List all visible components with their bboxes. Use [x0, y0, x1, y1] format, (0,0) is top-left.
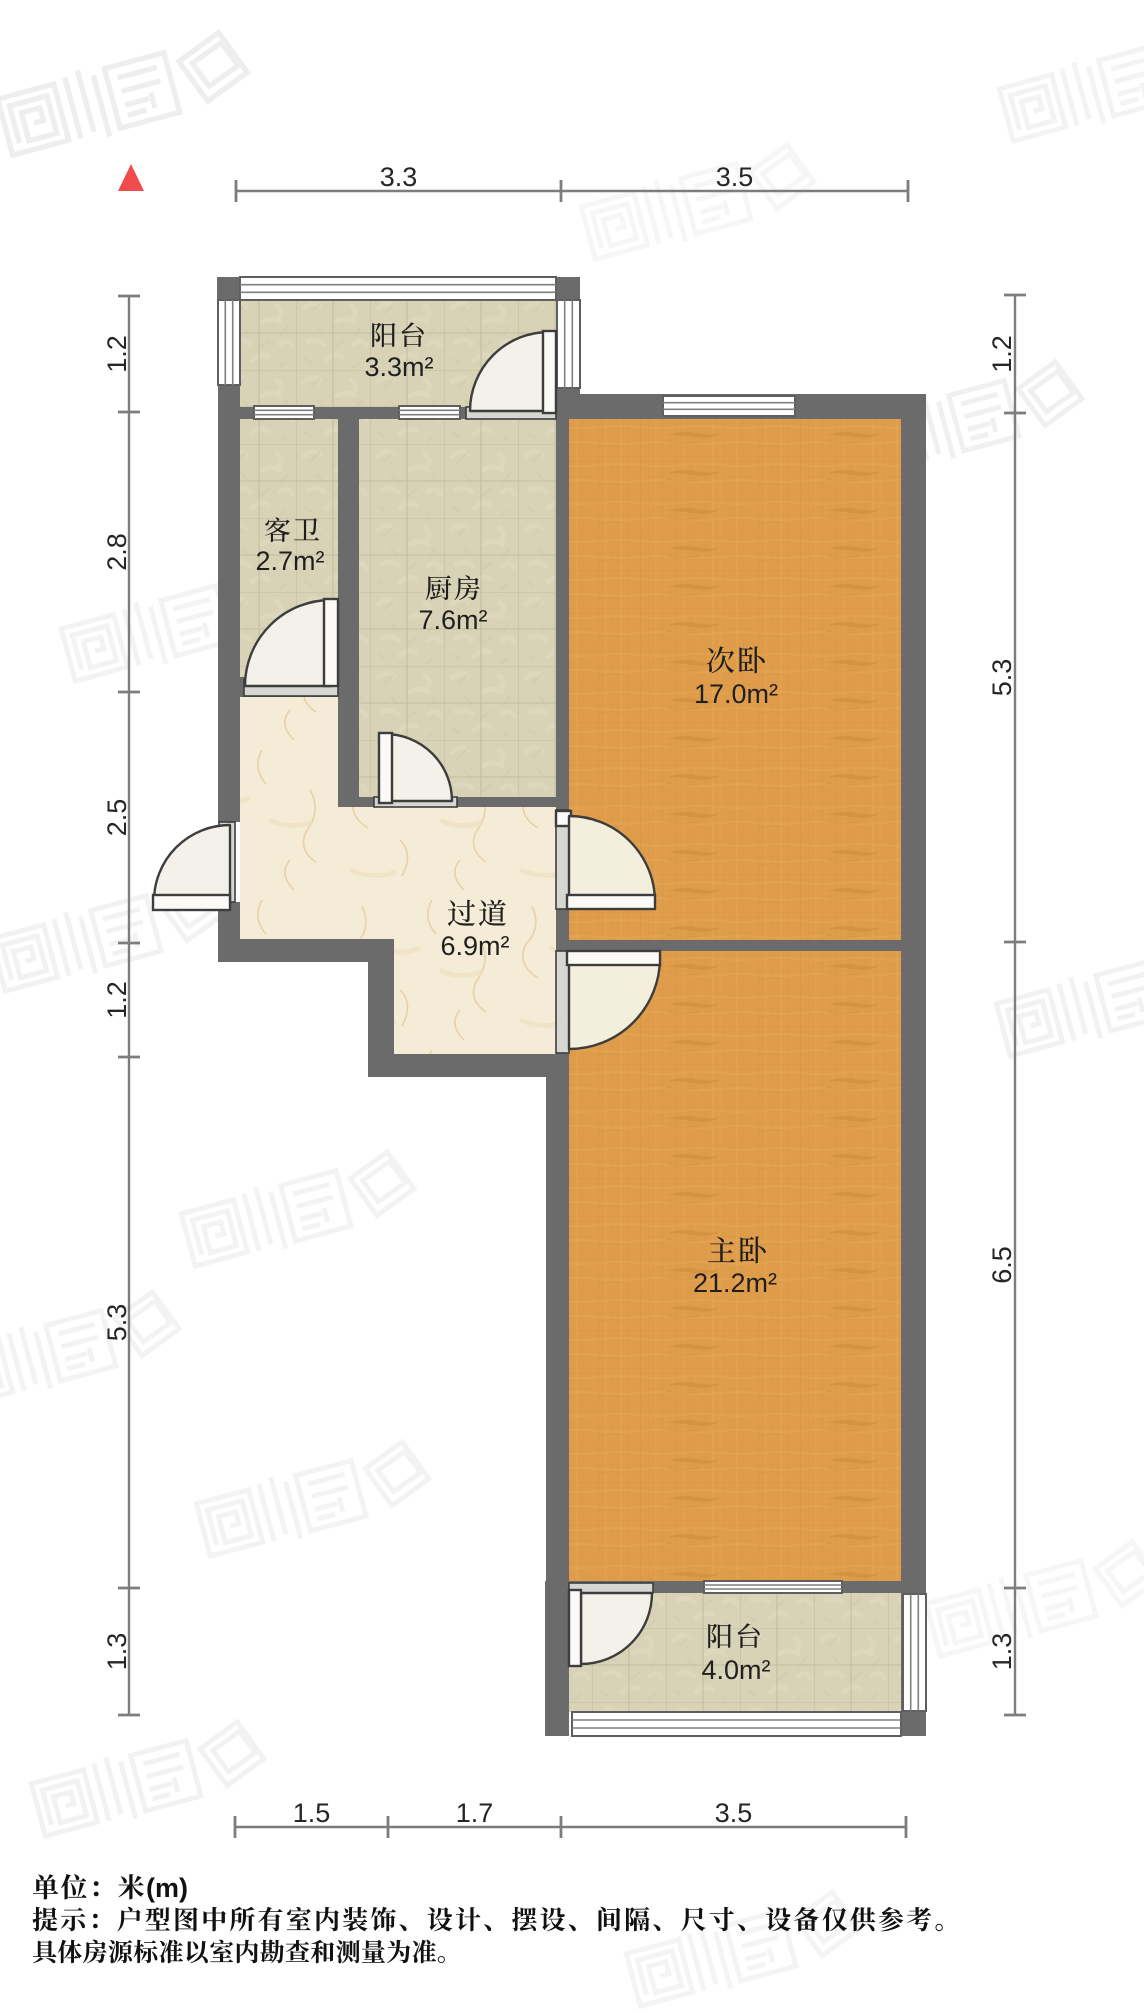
svg-text:5.3: 5.3 [987, 659, 1017, 697]
svg-text:7.6m²: 7.6m² [418, 605, 487, 635]
svg-text:1.2: 1.2 [102, 335, 132, 373]
svg-text:3.3m²: 3.3m² [364, 352, 433, 382]
svg-text:3.3: 3.3 [380, 162, 418, 192]
svg-text:6.5: 6.5 [987, 1246, 1017, 1284]
svg-text:1.3: 1.3 [987, 1633, 1017, 1671]
svg-text:1.2: 1.2 [102, 981, 132, 1019]
svg-text:4.0m²: 4.0m² [701, 1655, 770, 1685]
svg-text:1.5: 1.5 [293, 1798, 331, 1828]
svg-text:5.3: 5.3 [102, 1304, 132, 1342]
svg-text:3.5: 3.5 [716, 162, 754, 192]
svg-text:6.9m²: 6.9m² [440, 931, 509, 961]
svg-text:(m): (m) [146, 1873, 188, 1903]
svg-text:1.3: 1.3 [102, 1633, 132, 1671]
svg-text:2.5: 2.5 [102, 799, 132, 837]
svg-text:2.7m²: 2.7m² [255, 546, 324, 576]
svg-text:2.8: 2.8 [102, 533, 132, 571]
svg-text:3.5: 3.5 [715, 1798, 753, 1828]
svg-text:1.7: 1.7 [456, 1798, 494, 1828]
svg-text:21.2m²: 21.2m² [693, 1268, 777, 1298]
svg-text:17.0m²: 17.0m² [694, 679, 778, 709]
svg-text:1.2: 1.2 [987, 335, 1017, 373]
